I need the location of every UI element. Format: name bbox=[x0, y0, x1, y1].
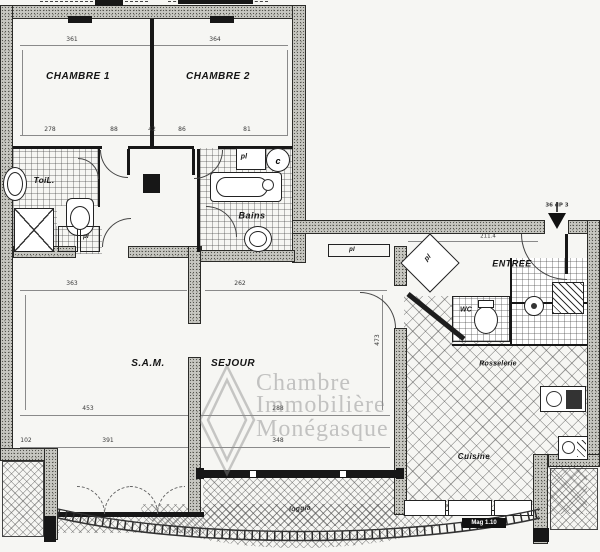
kitchen-sink-unit bbox=[540, 386, 586, 412]
dim-n: 391 bbox=[102, 438, 113, 444]
wall-right bbox=[587, 220, 600, 460]
dim-g: 81 bbox=[243, 127, 251, 133]
kitchen-unit-2 bbox=[558, 436, 588, 460]
closet-label-pair: pl bbox=[83, 234, 89, 240]
corner-block-bl bbox=[44, 516, 56, 542]
service-basin-dot bbox=[531, 303, 537, 309]
room-label-sejour: SEJOUR bbox=[211, 359, 255, 369]
wall-bed-bottom-a bbox=[13, 146, 102, 149]
french-door-arc-1 bbox=[77, 486, 105, 514]
dim-p: 211.4 bbox=[480, 234, 496, 240]
french-door-arc-4 bbox=[157, 486, 185, 514]
sill-gap-2 bbox=[340, 471, 346, 477]
kitchen-window-label: Mag 1.10 bbox=[471, 520, 496, 526]
toilette-sink-basin bbox=[7, 172, 23, 196]
wc-toilet bbox=[474, 306, 498, 334]
kitchen-sink-bowl bbox=[546, 391, 562, 407]
dim-m: 102 bbox=[20, 438, 31, 444]
closet-label-strip: pl bbox=[349, 247, 355, 253]
dim-a: 361 bbox=[66, 37, 77, 43]
sill-end-left bbox=[196, 468, 204, 479]
door-arc-sejour bbox=[360, 292, 396, 328]
dim-line-bed-bottom bbox=[20, 135, 288, 136]
wall-hall-top-a bbox=[292, 220, 545, 234]
wall-bains-bottom bbox=[197, 250, 295, 262]
dim-h: 363 bbox=[66, 281, 77, 287]
wall-bed-bottom-b bbox=[128, 146, 194, 149]
dim-c: 278 bbox=[44, 127, 55, 133]
watermark-logo bbox=[200, 366, 254, 474]
kitchen-counter-3 bbox=[494, 500, 532, 516]
wall-sejour-right-b bbox=[394, 328, 407, 515]
dim-line-top bbox=[20, 45, 288, 46]
corner-block-br bbox=[533, 528, 549, 542]
window-chambre1 bbox=[40, 1, 148, 3]
wall-sam-sejour-a bbox=[188, 246, 201, 324]
dim-f: 86 bbox=[178, 127, 186, 133]
wall-top bbox=[8, 5, 306, 19]
terrace-bottom-right-floor bbox=[550, 468, 598, 530]
entry-door-label: 36 dP 3 bbox=[545, 203, 568, 209]
water-heater: c bbox=[266, 148, 290, 172]
french-door-arc-3 bbox=[130, 486, 158, 514]
kitchen-unit-2-grate bbox=[577, 440, 586, 457]
dim-line-sejour-top bbox=[205, 290, 387, 291]
shower bbox=[14, 208, 54, 252]
window-chip-4 bbox=[210, 16, 234, 23]
window-chip-2 bbox=[178, 0, 253, 4]
room-label-cuisine: Cuisine bbox=[458, 453, 490, 461]
room-label-wc: WC bbox=[460, 307, 472, 314]
dim-k: 453 bbox=[82, 406, 93, 412]
bathtub-inner bbox=[216, 177, 268, 197]
watermark-line-2: Immobilière bbox=[256, 393, 386, 417]
kitchen-counter-1 bbox=[404, 500, 446, 516]
sill-gap-1 bbox=[250, 471, 256, 477]
floor-plan: c Mag 1.10 bbox=[0, 0, 600, 552]
sejour-sliding-door-sill bbox=[203, 470, 397, 478]
logo-diamond-outer bbox=[200, 366, 254, 474]
dim-j: 473 bbox=[375, 334, 381, 345]
kitchen-unit-2-bowl bbox=[562, 441, 575, 454]
dim-line-vert-sam bbox=[25, 295, 26, 410]
door-arc-chambre1 bbox=[100, 150, 128, 178]
french-door-arc-2 bbox=[104, 486, 132, 514]
dim-d: 88 bbox=[110, 127, 118, 133]
toilet-left-bowl bbox=[70, 206, 90, 230]
bathtub-drain bbox=[262, 179, 274, 191]
kitchen-stove bbox=[566, 390, 582, 409]
room-label-entree: ENTREE bbox=[492, 260, 532, 269]
wall-sam-sejour-b bbox=[188, 357, 201, 513]
room-label-chambre1: CHAMBRE 1 bbox=[46, 72, 110, 82]
logo-diamond-inner bbox=[208, 380, 246, 460]
sill-end-right bbox=[396, 468, 404, 479]
service-shelf bbox=[552, 282, 584, 314]
closet-label-bains: pl bbox=[241, 154, 248, 161]
closet-pair-a bbox=[58, 226, 78, 252]
window-chip-1 bbox=[95, 0, 123, 6]
closet-dark-box bbox=[143, 174, 160, 193]
sejour-closet-strip bbox=[328, 244, 390, 257]
room-label-chambre2: CHAMBRE 2 bbox=[186, 72, 250, 82]
entree-closet-diamond bbox=[400, 233, 459, 292]
watermark-line-3: Monégasque bbox=[256, 417, 389, 441]
kitchen-window-chip: Mag 1.10 bbox=[462, 518, 506, 528]
door-arc-sam bbox=[102, 218, 131, 247]
dim-line-vert-ch1 bbox=[22, 50, 23, 135]
dim-line-vert-ch2 bbox=[287, 50, 288, 135]
dim-i: 262 bbox=[234, 281, 245, 287]
kitchen-counter-2 bbox=[448, 500, 492, 516]
dim-e: 42 bbox=[148, 127, 156, 133]
room-label-toilette: ToiL. bbox=[34, 176, 55, 185]
terrace-bottom-left-floor bbox=[2, 461, 44, 537]
room-label-annex: Rosselerie bbox=[479, 361, 516, 368]
window-chip-3 bbox=[68, 16, 92, 23]
wall-under-wc bbox=[452, 344, 587, 346]
dim-b: 364 bbox=[209, 37, 220, 43]
room-label-bains: Bains bbox=[238, 212, 265, 221]
wall-left bbox=[0, 5, 13, 455]
dim-line-bottom bbox=[20, 447, 390, 448]
dim-line-sam-top bbox=[20, 290, 187, 291]
loggia-left-band bbox=[58, 517, 204, 533]
water-heater-label: c bbox=[275, 156, 280, 166]
room-label-sam: S.A.M. bbox=[131, 359, 165, 369]
bains-basin-inner bbox=[249, 231, 267, 247]
wc-toilet-tank bbox=[478, 300, 494, 308]
